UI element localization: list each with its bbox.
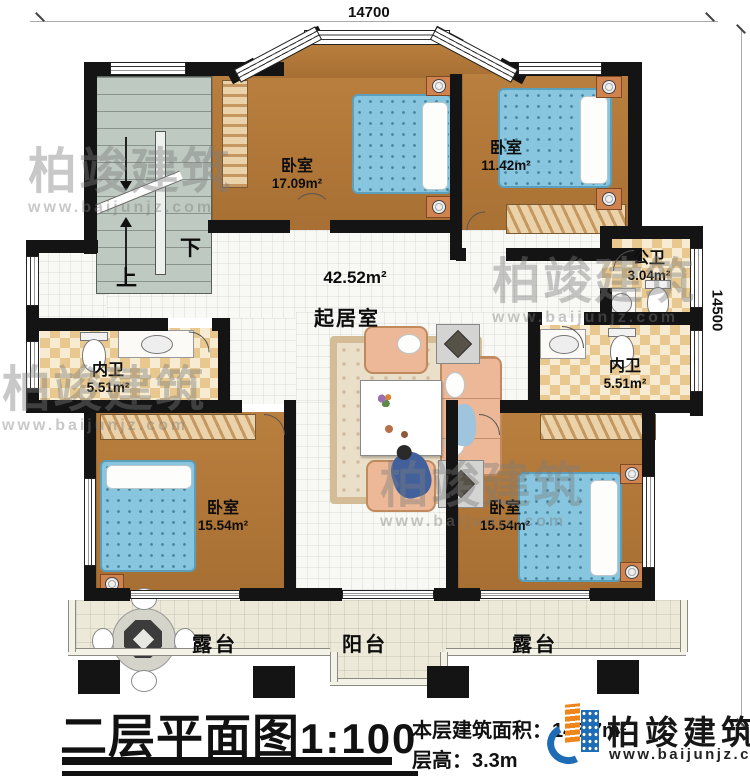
lamp-icon [625, 467, 639, 481]
bed-pillow [422, 102, 448, 190]
pillar [597, 660, 639, 694]
top-dimension-label: 14700 [345, 4, 393, 21]
brand-logo: 柏竣建筑 www.baijunjz.com [545, 700, 750, 780]
wall [458, 588, 480, 601]
room-name: 内卫 [565, 358, 685, 376]
closet [100, 414, 256, 440]
bed-pillow [580, 96, 608, 184]
wall [600, 226, 703, 239]
door-arc [292, 193, 332, 233]
wall [600, 239, 612, 249]
living-area-label: 42.52m² [290, 268, 420, 287]
cup [401, 431, 408, 438]
wall [218, 325, 230, 405]
room-name: 公卫 [606, 250, 692, 268]
room-area: 17.09m² [230, 176, 364, 191]
nightstand [426, 196, 452, 218]
right-dimension-label: 14500 [708, 287, 725, 335]
balcony-railing [330, 652, 338, 682]
terrace-table [112, 608, 176, 672]
hall-floor [230, 318, 296, 404]
wall [434, 588, 458, 601]
wall [330, 220, 462, 233]
wall [590, 588, 655, 601]
lamp-icon [625, 565, 639, 579]
throw-pillow [445, 372, 465, 398]
right-dimension-line [741, 30, 742, 726]
plant-icon [444, 330, 472, 358]
nightstand [620, 562, 644, 582]
pillar [78, 660, 120, 694]
logo-building-orange [565, 703, 580, 743]
top-dimension-line [30, 21, 718, 22]
stair-arrow-down [120, 181, 132, 191]
side-table [436, 324, 480, 364]
wall [84, 588, 130, 601]
title-underline [62, 757, 392, 765]
bed-pillow [106, 465, 192, 489]
wall [26, 318, 168, 331]
window [110, 62, 186, 75]
armchair [364, 326, 428, 374]
room-area: 42.52m² [290, 268, 420, 287]
wall [240, 588, 296, 601]
nightstand [596, 188, 622, 210]
wall [528, 325, 540, 405]
wall [84, 62, 97, 254]
lamp-icon [602, 192, 616, 206]
brand-site: www.baijunjz.com [609, 746, 750, 763]
wall [96, 400, 242, 413]
wall [208, 220, 290, 233]
window [26, 341, 39, 389]
wall [628, 62, 642, 238]
floor-height-value: 3.3m [472, 750, 518, 772]
lamp-icon [432, 79, 446, 93]
living-name-label: 起居室 [285, 308, 409, 330]
sliding-door [130, 590, 240, 599]
throw-pillow [397, 334, 421, 354]
room-area: 5.51m² [565, 376, 685, 391]
room-name: 起居室 [285, 308, 409, 330]
floor-plan-page: 14700 14500 [0, 0, 750, 783]
terrace-left-label: 露台 [192, 628, 238, 657]
room-area: 15.54m² [158, 518, 288, 533]
room-label-public-bath: 公卫 3.04m² [606, 250, 692, 283]
cup [385, 425, 393, 433]
window [84, 478, 96, 566]
room-label-bath-left: 内卫 5.51m² [48, 362, 168, 395]
terrace-railing [68, 600, 76, 652]
room-area: 11.42m² [448, 158, 564, 173]
stair-break-line [87, 171, 183, 218]
nightstand [620, 464, 644, 484]
room-label-bedroom-topright: 卧室 11.42m² [448, 140, 564, 173]
floor-area-label: 本层建筑面积： [412, 720, 552, 742]
room-name: 内卫 [48, 362, 168, 380]
window [518, 62, 602, 75]
plan-scale: 1:100 [300, 715, 417, 762]
wall [500, 400, 702, 413]
stairs-up-label: 上 [116, 262, 137, 292]
lamp-icon [432, 200, 446, 214]
terrace-right-label: 露台 [512, 628, 558, 657]
room-area: 3.04m² [606, 268, 692, 283]
floor-height-label: 层高： [412, 750, 472, 772]
sliding-door [480, 590, 590, 599]
window [642, 476, 655, 568]
stair-arrow-line [125, 137, 127, 181]
room-area: 15.54m² [440, 518, 570, 533]
window [26, 256, 39, 306]
room-label-bedroom-bottomright: 卧室 15.54m² [440, 500, 570, 533]
sink [611, 293, 632, 314]
floor-height-line: 层高：3.3m [412, 744, 518, 773]
room-area: 5.51m² [48, 380, 168, 395]
sliding-door [342, 590, 434, 599]
window [690, 330, 703, 392]
nightstand [596, 76, 622, 98]
wall [584, 312, 702, 325]
chair [131, 670, 157, 692]
room-label-bedroom-bottomleft: 卧室 15.54m² [158, 500, 288, 533]
room-name: 卧室 [230, 158, 364, 176]
room-name: 卧室 [440, 500, 570, 518]
room-name: 卧室 [448, 140, 564, 158]
stair-rail [155, 131, 166, 275]
brand-logo-icon [545, 702, 605, 772]
room-name: 卧室 [158, 500, 288, 518]
stair-arrow-up [120, 217, 132, 227]
plan-title-text: 二层平面图 [60, 710, 300, 763]
title-underline [62, 771, 418, 776]
wall [528, 312, 542, 325]
terrace-railing [680, 600, 688, 652]
pillar [253, 666, 295, 698]
room-label-bedroom-topleft: 卧室 17.09m² [230, 158, 364, 191]
bed [352, 94, 452, 194]
wall [284, 400, 296, 590]
stairs-down-label: 下 [180, 232, 201, 262]
bay-window [304, 30, 450, 45]
wall [296, 588, 342, 601]
lamp-icon [602, 80, 616, 94]
pillar [427, 666, 469, 698]
closet [540, 414, 656, 440]
wall [446, 400, 458, 590]
bed-pillow [590, 480, 618, 576]
logo-building-blue [581, 710, 599, 752]
terrace-railing [446, 648, 686, 656]
balcony-label: 阳台 [342, 628, 388, 657]
room-label-bath-right: 内卫 5.51m² [565, 358, 685, 391]
nightstand [426, 76, 452, 96]
wall [456, 248, 466, 261]
flower-vase [377, 393, 393, 407]
